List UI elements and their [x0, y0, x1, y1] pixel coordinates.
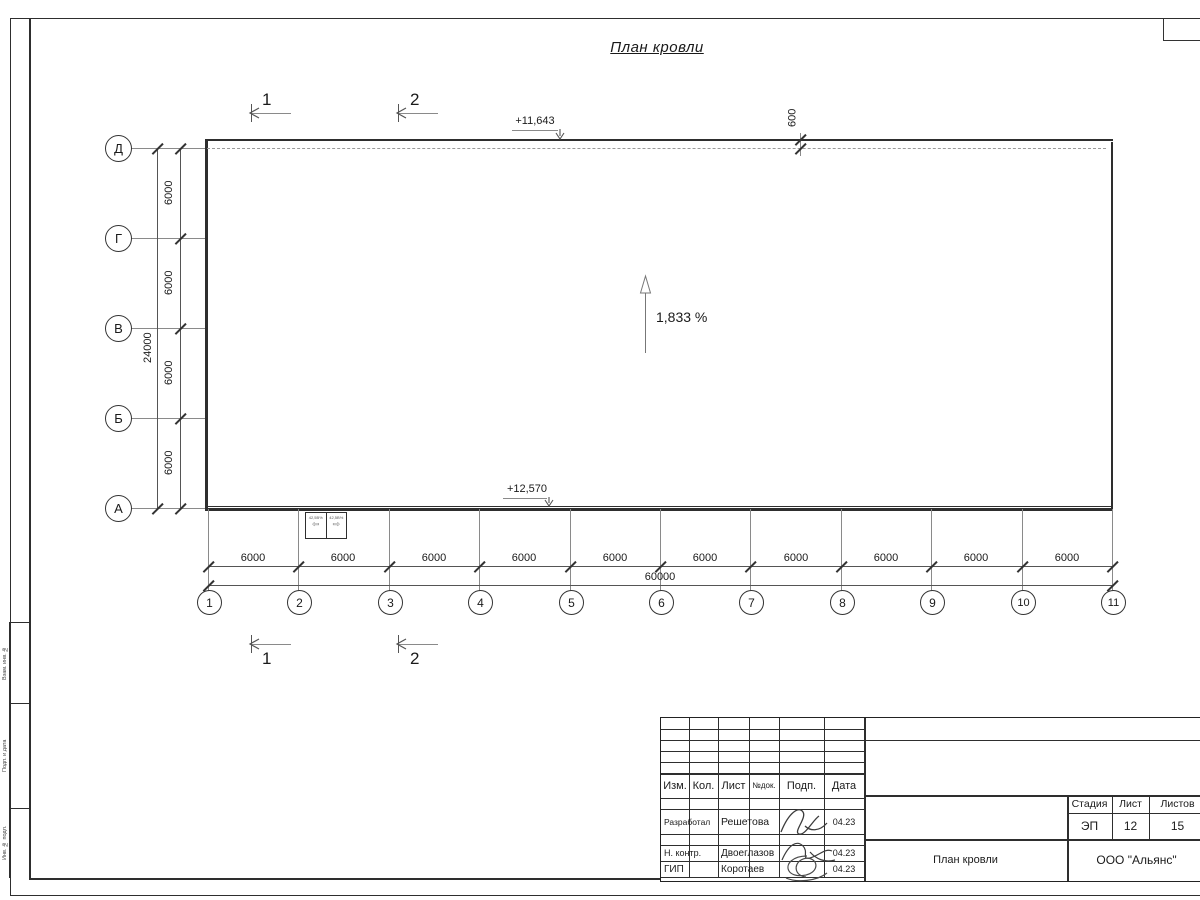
down-arrow-icon: [553, 129, 567, 141]
side-strip-divider: [9, 703, 30, 704]
title-block: Изм. Кол. Лист №док. Подп. Дата Разработ…: [660, 717, 1200, 882]
col-axis-line: [841, 509, 842, 591]
col-axis-bubble: 1: [197, 590, 222, 615]
col-axis-line: [208, 509, 209, 591]
frame-outer-left-line: [10, 18, 11, 896]
col-dim-label: 6000: [585, 552, 645, 564]
row-dim-label: 6000: [162, 263, 176, 303]
drawing-sheet: Взам. инв. № Подп. и дата Инв. № подл. П…: [0, 0, 1200, 900]
row-dim-label: 6000: [162, 173, 176, 213]
col-dim-label: 6000: [494, 552, 554, 564]
roof-bottom-edge-outer: [205, 506, 1113, 507]
row-axis-bubble: Д: [105, 135, 132, 162]
tb-line: [661, 798, 864, 799]
col-axis-bubble: 10: [1011, 590, 1036, 615]
parapet-offset-dim: 600: [786, 103, 799, 133]
frame-outer-bottom-line: [10, 895, 1200, 896]
tb-line: [661, 729, 864, 730]
col-axis-bubble: 5: [559, 590, 584, 615]
tb-role: Н. контр.: [661, 845, 721, 861]
signature-scribble: [781, 852, 833, 882]
col-dim-label: 6000: [675, 552, 735, 564]
roof-right-edge: [1111, 142, 1114, 509]
row-axis-line: [131, 148, 205, 149]
tb-stage-header: Стадия: [1067, 795, 1112, 813]
col-dim-label: 6000: [766, 552, 826, 564]
side-strip-divider: [9, 808, 30, 809]
row-total-dim-line: [157, 148, 158, 508]
tb-sheets-header: Листов: [1149, 795, 1200, 813]
row-axis-line: [131, 418, 205, 419]
section-arrow-icon: [394, 106, 408, 120]
section-mark-label: 2: [410, 90, 419, 110]
tb-line: [661, 751, 864, 752]
row-dim-label: 6000: [162, 443, 176, 483]
roof-hatch-symbol: 42,5В% ⇦ 42,5В% ⇨: [305, 512, 347, 539]
section-mark-label: 2: [410, 649, 419, 669]
tb-line: [661, 762, 864, 763]
elevation-top-label: +11,643: [505, 115, 565, 127]
col-dim-label: 6000: [223, 552, 283, 564]
tb-sheet-header: Лист: [1112, 795, 1149, 813]
row-dim-label: 6000: [162, 353, 176, 393]
tb-name: Решетова: [718, 809, 782, 834]
tb-sheet-value: 12: [1112, 813, 1149, 839]
signature-scribble: [777, 804, 829, 838]
row-axis-bubble: А: [105, 495, 132, 522]
roof-bottom-edge: [205, 508, 1113, 511]
col-axis-bubble: 8: [830, 590, 855, 615]
corner-stamp-box: [1163, 19, 1200, 41]
col-axis-bubble: 2: [287, 590, 312, 615]
right-block-arrow-icon: ⇨: [332, 520, 340, 529]
tb-col-header: Лист: [718, 773, 749, 798]
tb-col-header: Подп.: [779, 773, 824, 798]
row-total-dim-label: 24000: [141, 320, 155, 376]
col-axis-bubble: 11: [1101, 590, 1126, 615]
col-dim-label: 6000: [313, 552, 373, 564]
col-axis-line: [389, 509, 390, 591]
tb-col-header: Дата: [824, 773, 864, 798]
col-axis-line: [750, 509, 751, 591]
col-total-dim-label: 60000: [620, 571, 700, 583]
row-axis-bubble: Г: [105, 225, 132, 252]
tb-doc-title: План кровли: [864, 839, 1067, 881]
tb-role: Разработал: [661, 809, 721, 834]
hatch-cell: 42,5В% ⇨: [327, 513, 347, 538]
elevation-leader: [512, 130, 558, 131]
col-axis-bubble: 6: [649, 590, 674, 615]
col-axis-line: [931, 509, 932, 591]
col-total-dim-line: [208, 585, 1112, 586]
frame-inner-left-border: [29, 18, 31, 880]
col-dim-label: 6000: [1037, 552, 1097, 564]
col-dim-label: 6000: [856, 552, 916, 564]
side-strip-label: Инв. № подл.: [0, 808, 10, 878]
section-mark-label: 1: [262, 649, 271, 669]
frame-top-line: [10, 18, 1200, 19]
tb-line: [661, 834, 864, 835]
tb-line: [661, 740, 864, 741]
parapet-dashed-line: [207, 148, 1106, 149]
roof-left-edge: [205, 139, 208, 509]
elevation-leader: [503, 498, 547, 499]
side-strip-label: Подп. и дата: [0, 703, 10, 808]
tb-sheets-value: 15: [1149, 813, 1200, 839]
side-strip-divider: [9, 622, 30, 623]
col-axis-bubble: 3: [378, 590, 403, 615]
col-axis-bubble: 4: [468, 590, 493, 615]
col-axis-line: [1112, 509, 1113, 591]
col-axis-line: [479, 509, 480, 591]
tb-name: Коротаев: [718, 861, 782, 877]
col-dim-label: 6000: [946, 552, 1006, 564]
col-dim-label: 6000: [404, 552, 464, 564]
tb-role: ГИП: [661, 861, 721, 877]
section-arrow-icon: [247, 637, 261, 651]
section-arrow-icon: [394, 637, 408, 651]
tb-col-header: №док.: [749, 773, 779, 798]
left-block-arrow-icon: ⇦: [312, 520, 320, 529]
tb-line: [864, 740, 1200, 741]
tb-col-header: Кол.: [689, 773, 718, 798]
row-axis-bubble: Б: [105, 405, 132, 432]
col-axis-line: [1022, 509, 1023, 591]
slope-label: 1,833 %: [656, 309, 716, 325]
tb-line: [661, 877, 864, 878]
row-axis-bubble: В: [105, 315, 132, 342]
hatch-cell: 42,5В% ⇦: [306, 513, 327, 538]
tb-col-header: Изм.: [661, 773, 689, 798]
section-mark-label: 1: [262, 90, 271, 110]
side-strip-label: Взам. инв. №: [0, 622, 10, 703]
tb-name: Двоеглазов: [718, 845, 782, 861]
section-arrow-icon: [247, 106, 261, 120]
drawing-title: План кровли: [557, 39, 757, 56]
col-axis-bubble: 7: [739, 590, 764, 615]
col-axis-line: [570, 509, 571, 591]
slope-arrow-icon: [638, 275, 653, 355]
down-arrow-icon: [542, 497, 556, 509]
tb-date: 04.23: [824, 809, 864, 834]
col-axis-line: [298, 509, 299, 591]
row-axis-line: [131, 508, 205, 509]
col-axis-bubble: 9: [920, 590, 945, 615]
elevation-bottom-label: +12,570: [497, 483, 557, 495]
tb-stage-value: ЭП: [1067, 813, 1112, 839]
row-axis-line: [131, 238, 205, 239]
tb-company: ООО "Альянс": [1067, 839, 1200, 881]
roof-top-edge: [205, 139, 1113, 141]
